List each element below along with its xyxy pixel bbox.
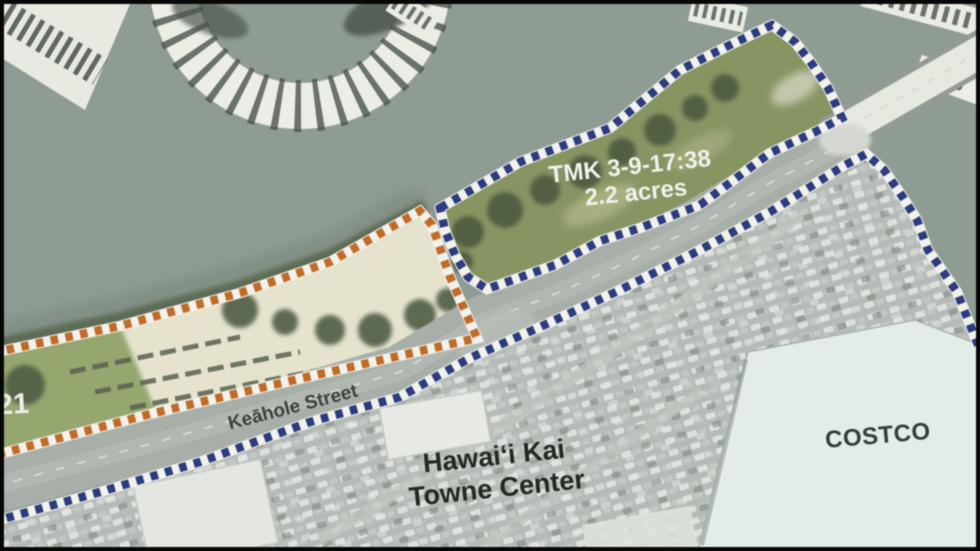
aerial-map-frame: TMK 3-9-17:38 2.2 acres Keāhole Street H… <box>0 0 980 551</box>
aerial-map: TMK 3-9-17:38 2.2 acres Keāhole Street H… <box>0 0 980 551</box>
adjacent-parcel-partial-label: 21 <box>0 388 30 422</box>
